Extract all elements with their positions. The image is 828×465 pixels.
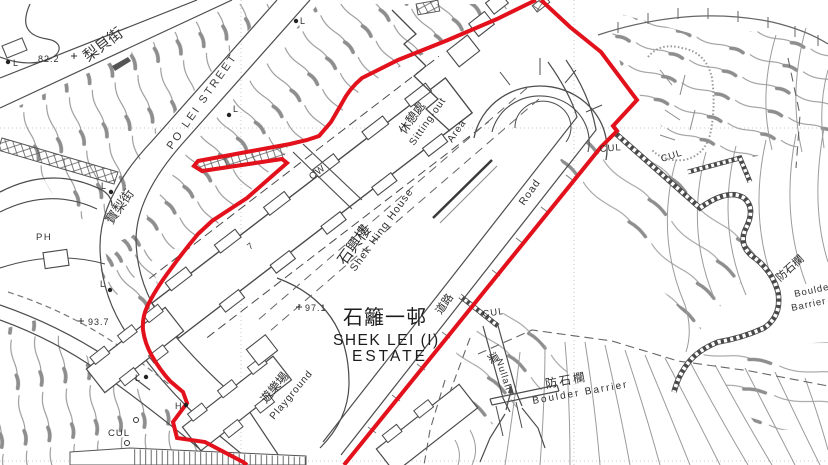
- label-lamp-4: L: [101, 181, 106, 191]
- survey-map-canvas: 梨貝街 PO LEI STREET 寶梨街 PH CW 7 休憩處 Sittin…: [0, 0, 828, 465]
- label-cul-1: CUL: [599, 142, 622, 155]
- playground-building-3: [372, 379, 478, 465]
- label-lamp-6: L: [135, 373, 140, 383]
- slope-hachure-bands: [0, 4, 828, 465]
- label-spot-82: 82.2: [38, 54, 60, 64]
- label-estate-en2: ESTATE: [352, 348, 428, 365]
- label-estate-cn: 石籬一邨: [343, 306, 427, 329]
- label-hydrant: H: [175, 401, 182, 411]
- spot-height-cross-93: [78, 318, 84, 324]
- label-spot-93: 93.7: [88, 317, 110, 327]
- label-cul-4: CUL: [108, 428, 130, 439]
- spot-height-cross-97: [296, 304, 302, 310]
- label-lamp-2: L: [233, 104, 238, 114]
- label-spot-97: 97.1: [305, 303, 327, 313]
- label-cul-2: CUL: [660, 148, 684, 165]
- label-ph: PH: [36, 232, 52, 243]
- chain-upper: [688, 158, 750, 182]
- survey-map-viewport: 梨貝街 PO LEI STREET 寶梨街 PH CW 7 休憩處 Sittin…: [0, 0, 828, 465]
- small-platform: [2, 38, 27, 58]
- label-estate-en1: SHEK LEI (I): [333, 332, 440, 349]
- label-boulder-barrier2-cn: 防石欄: [773, 252, 807, 284]
- label-lamp-5: L: [100, 279, 105, 289]
- ramp-path: [433, 160, 492, 218]
- label-lamp-3: L: [300, 16, 305, 26]
- label-lamp-1: L: [13, 58, 18, 68]
- spot-height-cross-82: [71, 53, 77, 59]
